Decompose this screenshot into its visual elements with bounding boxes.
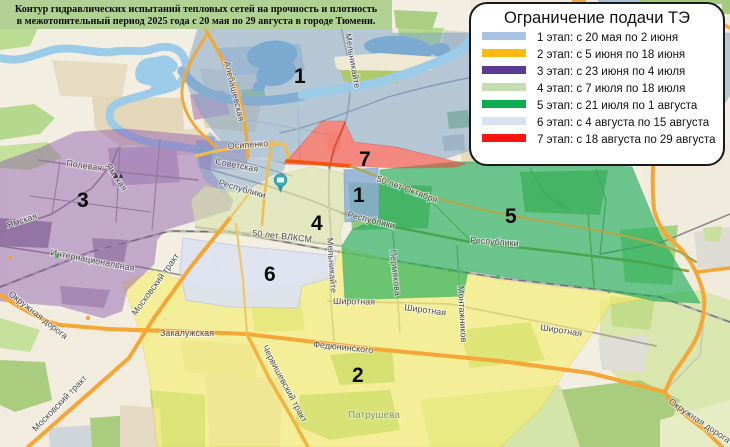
- svg-text:в межотопительный период 2025: в межотопительный период 2025 года с 20 …: [17, 16, 376, 27]
- svg-text:5: 5: [505, 205, 517, 228]
- svg-text:Закалужская: Закалужская: [160, 328, 214, 338]
- svg-text:Ограничение подачи ТЭ: Ограничение подачи ТЭ: [504, 9, 690, 27]
- svg-text:1: 1: [294, 65, 306, 88]
- svg-text:7 этап: с 18 августа по 29 авг: 7 этап: с 18 августа по 29 августа: [537, 134, 716, 146]
- svg-text:6: 6: [264, 263, 276, 286]
- svg-text:7: 7: [359, 148, 371, 171]
- svg-text:4 этап: с 7 июля по 18 июля: 4 этап: с 7 июля по 18 июля: [537, 83, 685, 95]
- svg-text:2: 2: [352, 364, 364, 387]
- svg-text:3 этап: с 23 июня по 4 июля: 3 этап: с 23 июня по 4 июля: [537, 66, 685, 78]
- svg-text:1 этап: с 20 мая по 2 июня: 1 этап: с 20 мая по 2 июня: [537, 32, 678, 44]
- svg-text:Контур гидравлических испытани: Контур гидравлических испытаний тепловых…: [15, 4, 378, 15]
- svg-text:5 этап: с 21 июля по 1 августа: 5 этап: с 21 июля по 1 августа: [537, 100, 698, 112]
- svg-text:6 этап: с 4 августа по 15 авгу: 6 этап: с 4 августа по 15 августа: [537, 117, 710, 129]
- svg-text:Патрушева: Патрушева: [348, 410, 400, 421]
- svg-text:4: 4: [311, 212, 323, 235]
- svg-text:Широтная: Широтная: [333, 296, 375, 307]
- svg-text:3: 3: [77, 189, 89, 212]
- svg-text:1: 1: [353, 184, 365, 207]
- svg-text:2 этап: с 5 июня по 18 июня: 2 этап: с 5 июня по 18 июня: [537, 49, 685, 61]
